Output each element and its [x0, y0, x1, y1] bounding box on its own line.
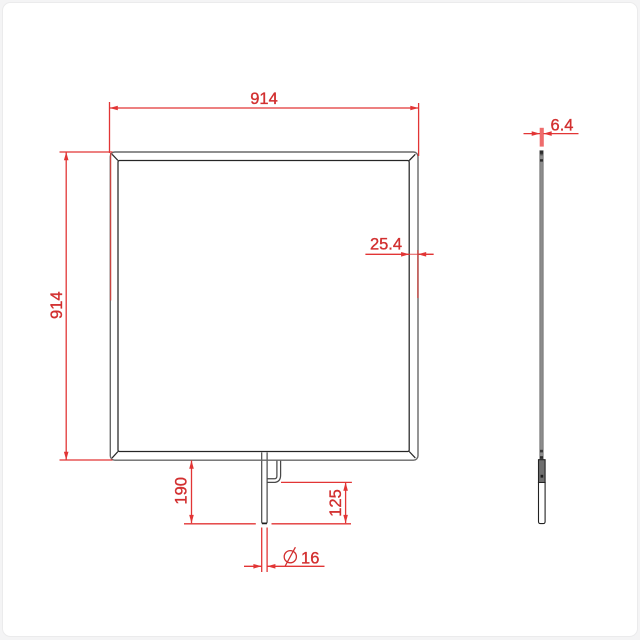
svg-text:25.4: 25.4: [370, 236, 402, 254]
svg-text:125: 125: [327, 489, 345, 517]
svg-text:6.4: 6.4: [551, 117, 574, 135]
svg-text:16: 16: [301, 549, 319, 567]
svg-text:914: 914: [48, 291, 66, 319]
svg-text:190: 190: [173, 477, 191, 505]
svg-text:914: 914: [250, 90, 278, 108]
